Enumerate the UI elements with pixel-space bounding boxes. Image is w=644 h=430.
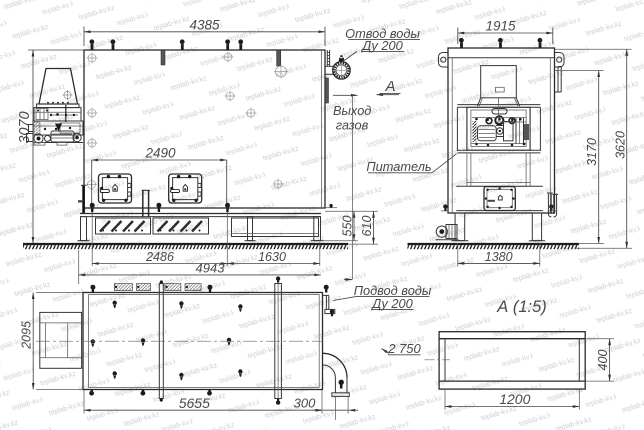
svg-text:А: А [384, 78, 395, 95]
svg-text:400: 400 [596, 350, 610, 371]
svg-text:2490: 2490 [144, 146, 176, 161]
svg-text:4943: 4943 [196, 261, 226, 276]
svg-text:300: 300 [294, 395, 316, 410]
svg-text:610: 610 [360, 216, 374, 237]
svg-text:2095: 2095 [20, 321, 34, 350]
svg-text:Ду 200: Ду 200 [360, 38, 403, 53]
svg-text:Ду 200: Ду 200 [370, 296, 413, 311]
svg-text:3620: 3620 [613, 131, 627, 159]
svg-text:газов: газов [336, 118, 369, 133]
svg-text:1200: 1200 [499, 391, 530, 407]
svg-text:2 750: 2 750 [387, 341, 421, 356]
svg-text:4385: 4385 [189, 18, 220, 33]
svg-text:1630: 1630 [258, 250, 286, 264]
svg-text:2486: 2486 [145, 250, 174, 264]
svg-text:1915: 1915 [485, 19, 516, 34]
svg-text:Питатель: Питатель [366, 159, 431, 174]
svg-text:1380: 1380 [485, 250, 513, 264]
svg-text:3070: 3070 [17, 111, 33, 143]
svg-text:А (1:5): А (1:5) [496, 298, 547, 316]
svg-text:3170: 3170 [585, 138, 599, 166]
svg-text:5655: 5655 [179, 395, 210, 411]
svg-text:Выход: Выход [333, 103, 371, 118]
